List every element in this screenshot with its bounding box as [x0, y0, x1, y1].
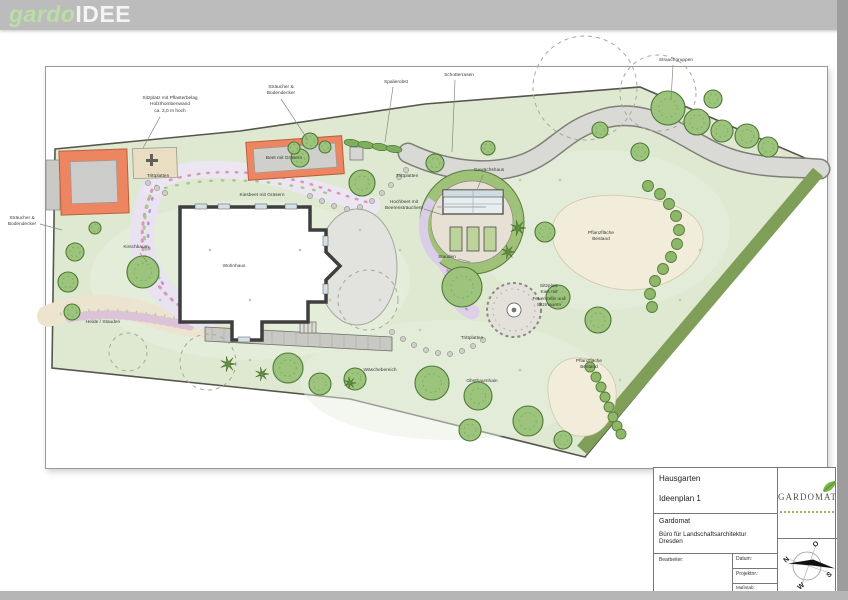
compass-rose: N O S W — [777, 538, 837, 598]
gardomat-tagline — [780, 511, 834, 513]
datum-label: Datum: — [736, 556, 752, 562]
massstab-label: Maßstab: — [736, 585, 755, 590]
gardomat-leaf-icon — [822, 480, 838, 494]
page-edge-bottom — [0, 591, 848, 600]
projektnr-label: Projektnr.: — [736, 571, 759, 577]
title-plan-name: Ideenplan 1 — [659, 494, 701, 503]
page-edge-right — [837, 0, 848, 600]
svg-text:S: S — [826, 571, 834, 580]
feuerstelle — [487, 283, 541, 337]
title-project: Hausgarten — [659, 474, 700, 483]
page-background: gardoIDEE — [0, 0, 848, 600]
title-company-desc: Büro für Landschaftsarchitektur Dresden — [659, 531, 747, 545]
title-company: Gardomat — [659, 518, 690, 525]
svg-text:O: O — [812, 540, 821, 549]
gewaechshaus-area — [420, 170, 524, 274]
title-block: Hausgarten Ideenplan 1 Gardomat Büro für… — [653, 467, 836, 597]
svg-text:N: N — [783, 556, 791, 565]
bearbeiter-label: Bearbeiter: — [659, 557, 683, 563]
svg-text:W: W — [797, 581, 807, 591]
